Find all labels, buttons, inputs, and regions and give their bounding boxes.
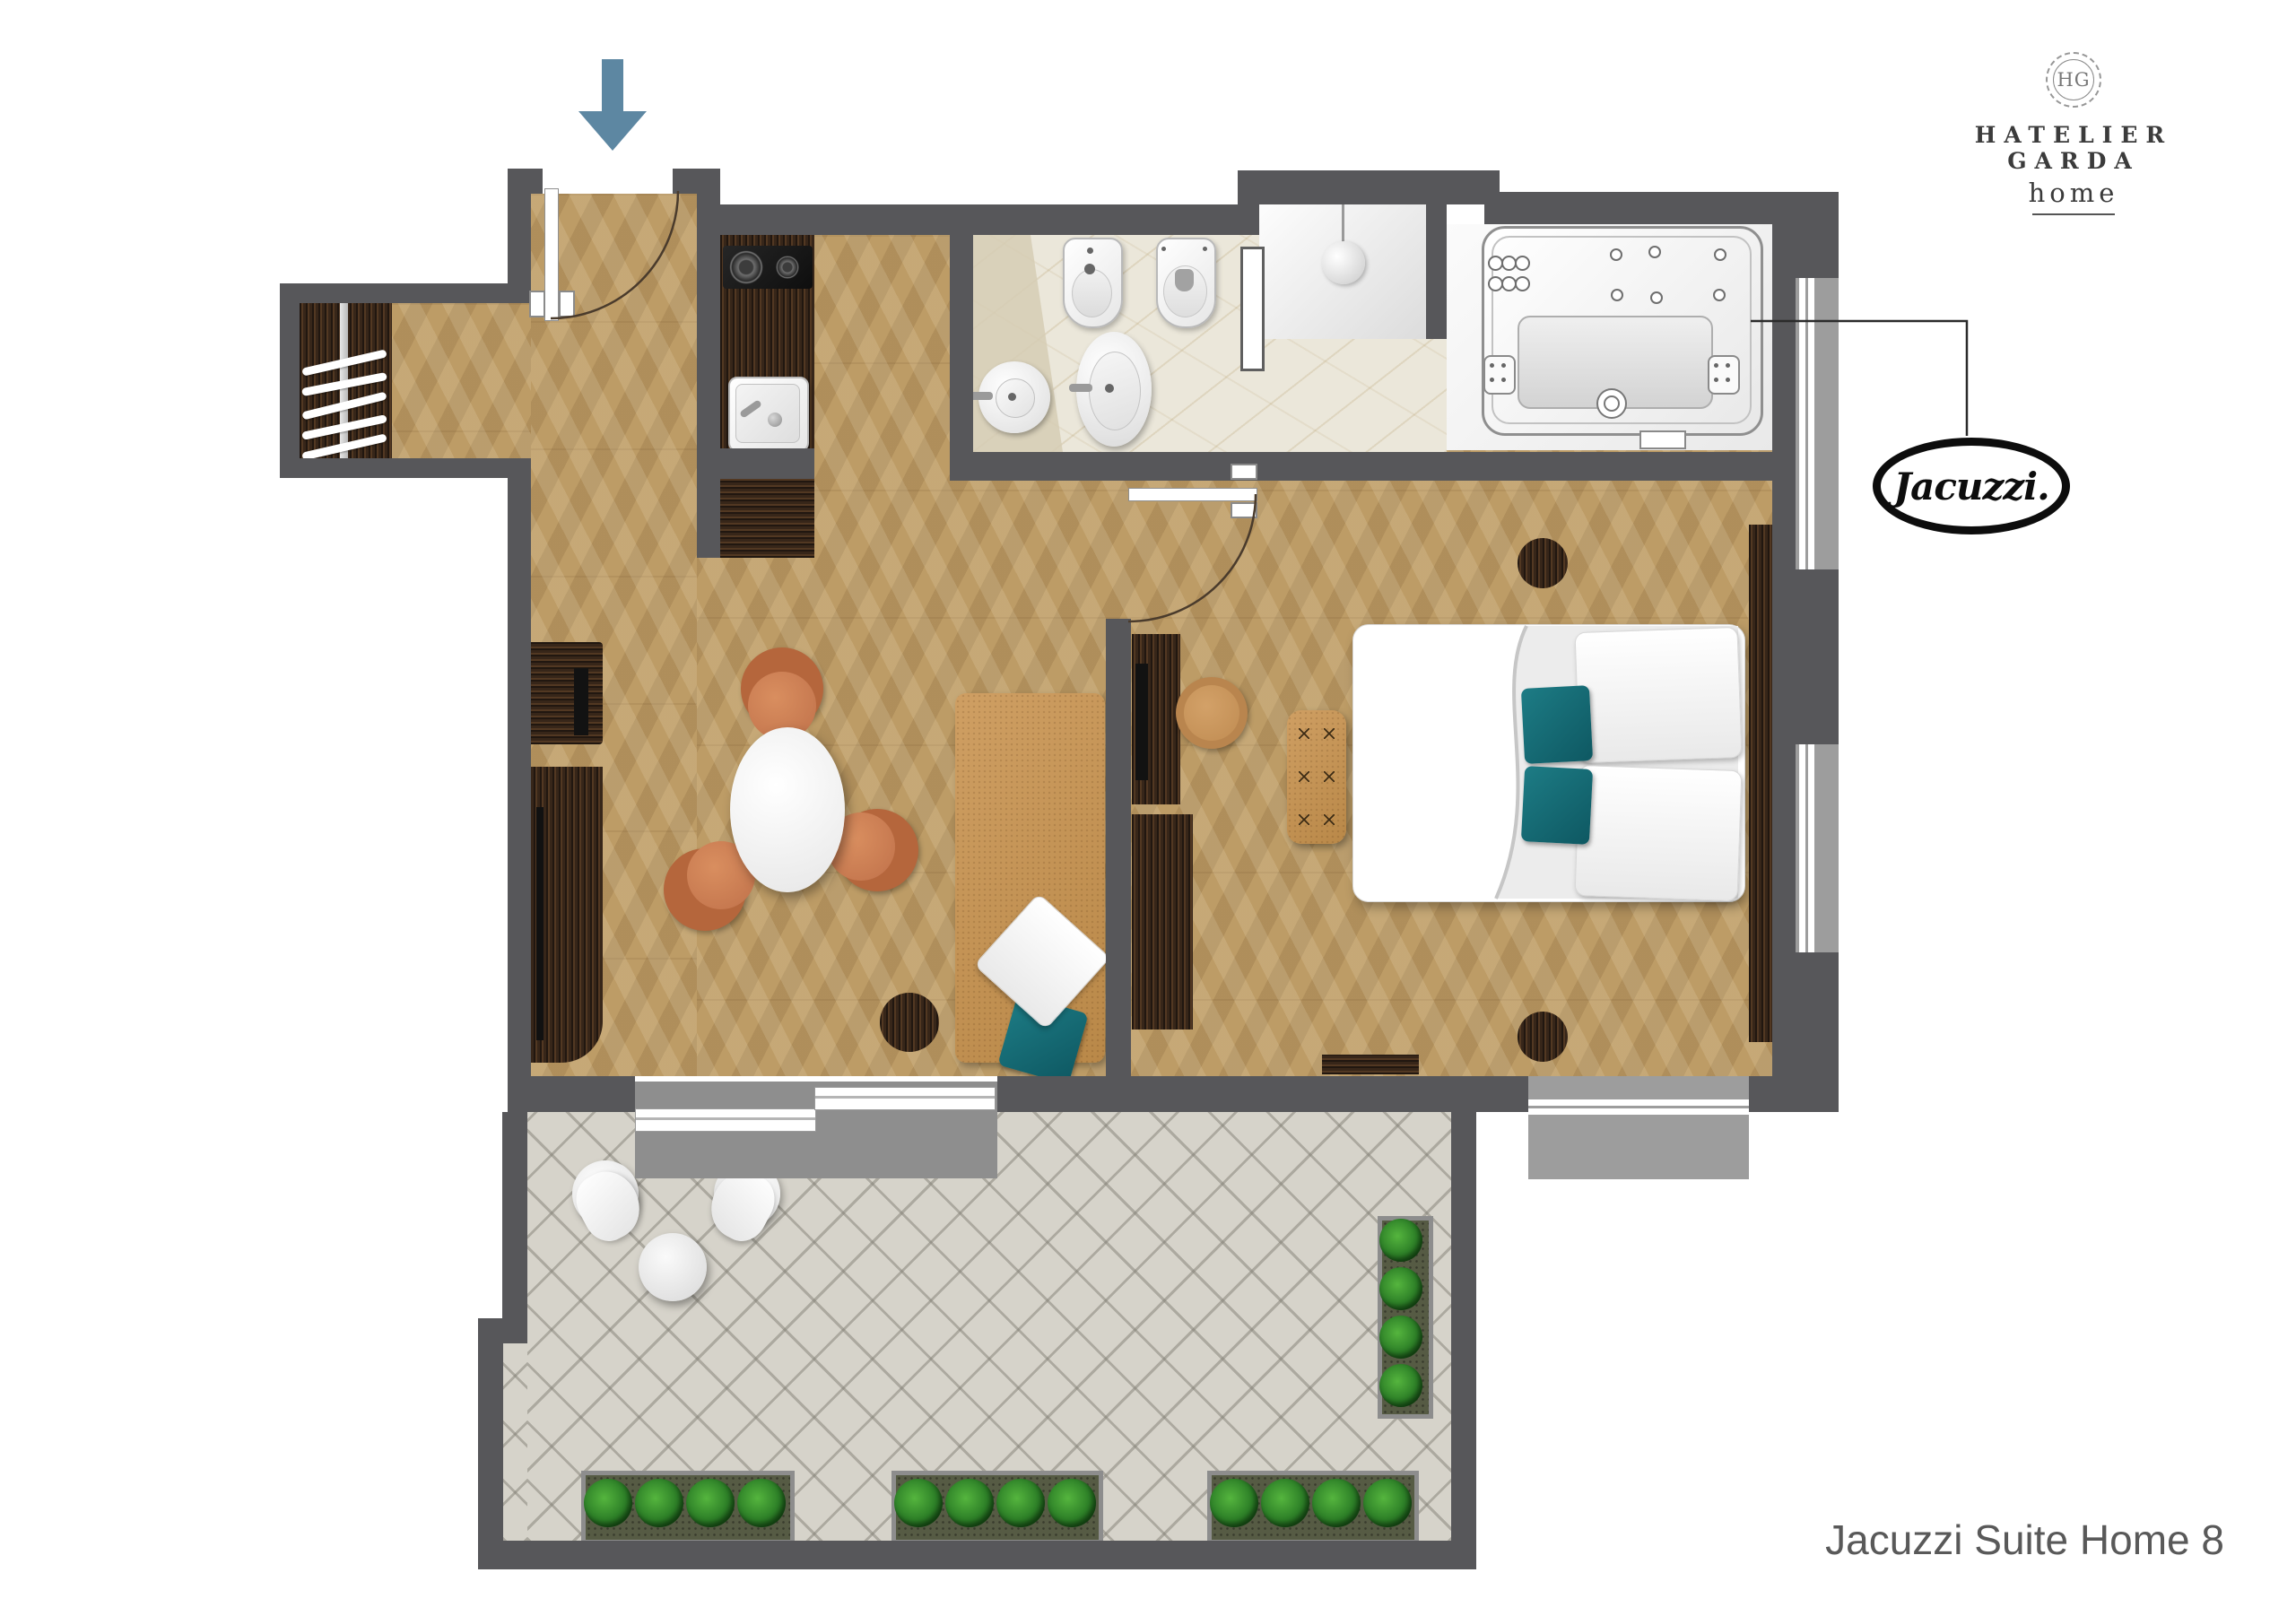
- bed-pillow-white: [1575, 627, 1743, 763]
- entrance-arrow-head: [578, 111, 647, 151]
- bedroom-door-leaf: [1128, 488, 1257, 501]
- entrance-arrow-stem: [602, 59, 623, 113]
- brand-monogram-ring: HG: [2046, 52, 2101, 108]
- brand-underline: [2032, 213, 2115, 215]
- wall: [1238, 170, 1259, 235]
- bench-tuft-x: [1299, 771, 1309, 782]
- wall: [1426, 204, 1447, 339]
- wall: [280, 283, 300, 478]
- bathroom-partition: [1240, 247, 1265, 371]
- window-glass-line: [1808, 744, 1814, 952]
- bush: [1363, 1479, 1412, 1527]
- door-jamb: [1231, 502, 1257, 518]
- nightstand: [1518, 1012, 1568, 1062]
- jacuzzi-jet: [1713, 289, 1726, 301]
- bench-tuft-x: [1324, 814, 1335, 825]
- headrest-stud: [1501, 378, 1506, 382]
- headrest-stud: [1714, 363, 1718, 368]
- bush: [584, 1479, 632, 1527]
- terrace-table: [639, 1233, 707, 1301]
- headrest-stud: [1501, 363, 1506, 368]
- wall: [1484, 192, 1839, 224]
- wall: [699, 448, 814, 479]
- bush: [1379, 1219, 1422, 1262]
- door-jamb: [529, 291, 545, 317]
- brand-monogram-circle: HG: [2053, 59, 2094, 100]
- tv-console: [527, 642, 603, 744]
- jacuzzi-jet: [1515, 256, 1530, 271]
- entry-door-leaf: [544, 188, 559, 321]
- wall: [673, 169, 720, 194]
- bush: [737, 1479, 786, 1527]
- wall: [950, 452, 1797, 481]
- jacuzzi-headrest: [1483, 355, 1516, 395]
- headrest-stud: [1490, 378, 1494, 382]
- bush: [1312, 1479, 1361, 1527]
- terrace-wall: [478, 1541, 1476, 1569]
- bed-pillow-white: [1575, 765, 1743, 901]
- window-glass-line: [1808, 278, 1814, 569]
- jacuzzi-headrest: [1708, 355, 1740, 395]
- bed-pillow-teal: [1521, 685, 1593, 764]
- bench-tuft-x: [1299, 814, 1309, 825]
- washbasin-oval-bowl: [1089, 352, 1141, 430]
- washbasin-faucet-icon: [1069, 384, 1092, 392]
- wall-living-bedroom-divider: [1106, 619, 1131, 1112]
- terrace-wall: [478, 1318, 503, 1569]
- terrace-wall: [1451, 1112, 1476, 1569]
- toilet-fitting: [1203, 247, 1207, 251]
- bush: [945, 1479, 994, 1527]
- toilet-fitting: [1161, 247, 1166, 251]
- jacuzzi-jet: [1515, 276, 1530, 291]
- washbasin-faucet-icon: [1008, 393, 1016, 401]
- sliding-door-leaf: [635, 1108, 816, 1132]
- shower-head-icon: [1322, 241, 1365, 284]
- wall: [697, 204, 1259, 235]
- terrace-wall: [502, 1112, 527, 1318]
- stove-burner-icon: [776, 256, 799, 279]
- suite-caption: Jacuzzi Suite Home 8: [1825, 1516, 2224, 1564]
- kitchen-faucet-icon: [768, 413, 782, 427]
- living-side-table: [880, 993, 939, 1052]
- bush: [686, 1479, 735, 1527]
- toilet-opening: [1175, 269, 1194, 291]
- bush: [1379, 1267, 1422, 1310]
- wall: [697, 194, 720, 558]
- wall: [508, 1076, 635, 1112]
- bidet-faucet-icon: [1087, 248, 1093, 254]
- jacuzzi-drain-inner: [1604, 395, 1620, 412]
- dining-table: [730, 727, 845, 892]
- floor-plan-canvas: HG HATELIER GARDA home Jacuzzi. Jacuzzi …: [0, 0, 2296, 1616]
- bench-tuft-x: [1299, 728, 1309, 739]
- tv-console-slab: [574, 668, 588, 735]
- jacuzzi-jet: [1611, 289, 1623, 301]
- sofa-bench-crease: [536, 807, 544, 1040]
- stove-burner-icon: [729, 250, 763, 284]
- bush: [1261, 1479, 1309, 1527]
- window-glass-line: [1799, 278, 1805, 569]
- headrest-stud: [1726, 378, 1730, 382]
- jacuzzi-brand-badge: Jacuzzi.: [1873, 438, 2070, 534]
- bidet-faucet-icon: [1084, 264, 1095, 274]
- wall: [280, 458, 531, 478]
- jacuzzi-brand-text: Jacuzzi.: [1893, 465, 2048, 508]
- washbasin-faucet-icon: [1105, 384, 1114, 393]
- window-glass-line: [1799, 744, 1805, 952]
- headrest-stud: [1490, 363, 1494, 368]
- bush: [1379, 1316, 1422, 1359]
- desk-chair-seat: [1184, 685, 1239, 741]
- headrest-stud: [1726, 363, 1730, 368]
- bush: [1048, 1479, 1096, 1527]
- wall: [1259, 170, 1500, 204]
- sliding-door-leaf: [814, 1087, 996, 1110]
- bush: [894, 1479, 943, 1527]
- wall: [508, 458, 531, 1112]
- jacuzzi-jet: [1648, 246, 1661, 258]
- door-jamb: [559, 291, 575, 317]
- entrance-arrow-icon: [578, 59, 647, 151]
- jacuzzi-jet: [1650, 291, 1663, 304]
- bedroom-wardrobe: [1749, 525, 1774, 1042]
- jacuzzi-control: [1639, 430, 1686, 449]
- window-glass-line: [1528, 1099, 1749, 1106]
- brand-tagline: home: [1919, 178, 2228, 208]
- storage-bench: [1287, 710, 1346, 844]
- door-jamb: [1231, 464, 1257, 480]
- bedroom-cabinet: [1132, 814, 1193, 1030]
- bedroom-desk-slab: [1135, 664, 1148, 780]
- bidet-bowl: [1072, 269, 1112, 317]
- headrest-stud: [1714, 378, 1718, 382]
- bedroom-low-cabinet: [1322, 1055, 1419, 1074]
- brand-logo: HG HATELIER GARDA home: [1919, 52, 2228, 222]
- wall: [950, 231, 973, 481]
- brand-monogram: HG: [2057, 69, 2090, 91]
- bed-pillow-teal: [1521, 766, 1593, 845]
- bench-tuft-x: [1324, 728, 1335, 739]
- bush: [635, 1479, 683, 1527]
- wall: [1749, 1076, 1839, 1112]
- nightstand: [1518, 538, 1568, 588]
- wall: [280, 283, 531, 303]
- brand-name: HATELIER GARDA: [1919, 122, 2228, 174]
- jacuzzi-jet: [1714, 248, 1726, 261]
- bush: [1379, 1364, 1422, 1407]
- bush: [1210, 1479, 1258, 1527]
- window-bedroom-bottom: [1528, 1076, 1749, 1179]
- jacuzzi-jet: [1610, 248, 1622, 261]
- wall: [997, 1076, 1528, 1112]
- window-glass-line: [1528, 1108, 1749, 1115]
- bush: [996, 1479, 1045, 1527]
- bench-tuft-x: [1324, 771, 1335, 782]
- terrace-floor-extension: [503, 1343, 527, 1541]
